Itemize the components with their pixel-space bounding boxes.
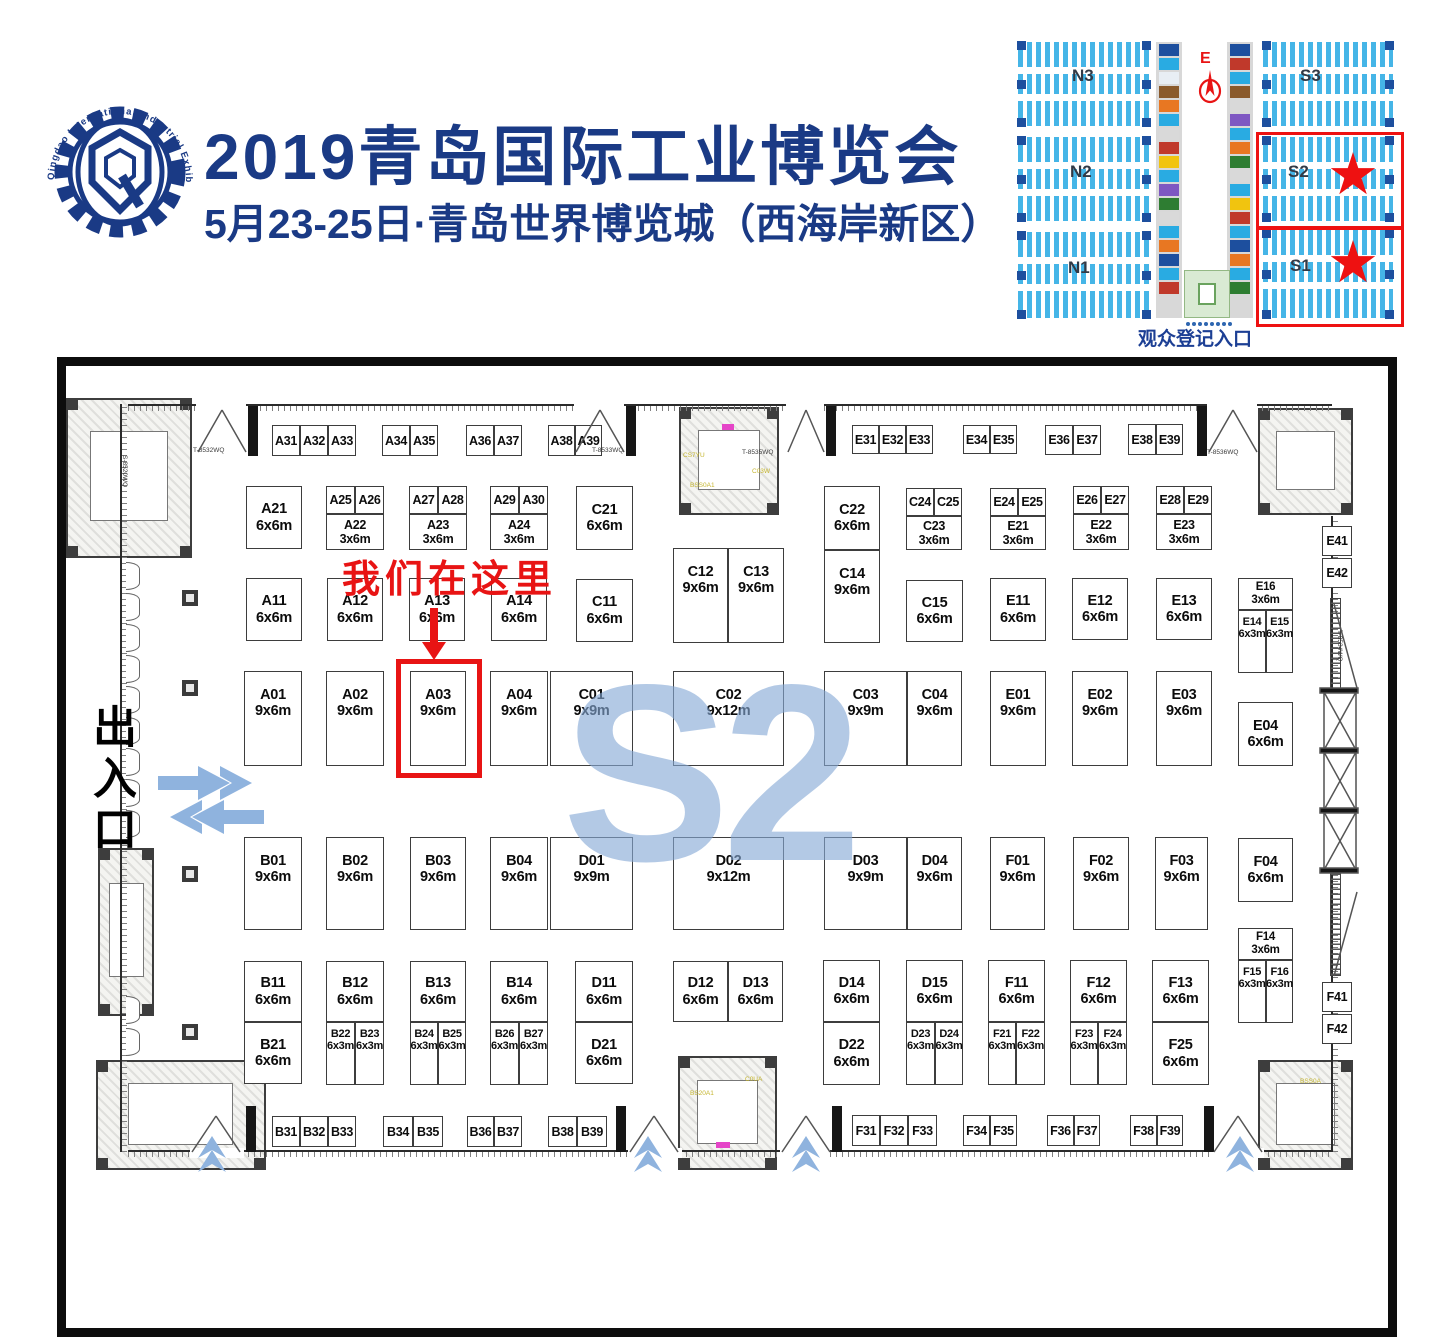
pillar <box>182 866 198 882</box>
wall-opening <box>196 404 246 414</box>
booth-A04: A049x6m <box>490 671 548 766</box>
booth-B33: B33 <box>328 1116 356 1147</box>
booth-A24: A243x6m <box>490 514 548 550</box>
booth-B27: B276x3m <box>519 1022 548 1085</box>
door-arc <box>126 624 140 652</box>
facility-code: C03W <box>752 468 770 475</box>
booth-B21: B216x6m <box>244 1022 302 1084</box>
booth-C15: C156x6m <box>906 580 963 642</box>
booth-F15: F156x3m <box>1238 960 1266 1023</box>
minimap-hall-S3 <box>1263 42 1393 126</box>
booth-E34: E34 <box>963 425 990 454</box>
booth-F34: F34 <box>963 1115 990 1146</box>
booth-B01: B019x6m <box>244 837 302 930</box>
booth-F39: F39 <box>1157 1115 1183 1146</box>
magenta-mark <box>716 1142 730 1148</box>
booth-C25: C25 <box>934 488 962 516</box>
wall-code: T-8535WQ <box>742 449 773 456</box>
booth-F16: F166x3m <box>1266 960 1293 1023</box>
door-arc <box>126 1028 140 1056</box>
minimap-corridor-strip <box>1156 42 1182 318</box>
page-subtitle: 5月23-25日·青岛世界博览城（西海岸新区） <box>204 190 1001 250</box>
booth-A38: A38 <box>548 425 575 456</box>
booth-A02: A029x6m <box>326 671 384 766</box>
booth-B03: B039x6m <box>410 837 466 930</box>
booth-F42: F42 <box>1322 1014 1352 1044</box>
magenta-mark <box>722 424 734 430</box>
wall-code: T-8533WQ <box>592 447 623 454</box>
booth-C14: C149x6m <box>824 550 880 643</box>
booth-F04: F046x6m <box>1238 838 1293 902</box>
booth-E31: E31 <box>852 425 879 454</box>
booth-C22: C226x6m <box>824 486 880 550</box>
booth-E41: E41 <box>1322 526 1352 556</box>
exit-entrance-label: 出入口 <box>78 704 142 857</box>
booth-C03: C039x9m <box>824 671 907 766</box>
door-arc <box>126 562 140 590</box>
wall-opening <box>780 1148 830 1158</box>
booth-A21: A216x6m <box>246 486 302 549</box>
booth-F03: F039x6m <box>1155 837 1208 930</box>
booth-D04: D049x6m <box>907 837 962 930</box>
booth-E33: E33 <box>906 425 933 454</box>
expo-logo-icon: Qingdao International Industrial Exhibit… <box>38 80 202 258</box>
wall-code: T-8536WQ <box>1207 449 1238 456</box>
we-are-here-annotation: 我们在这里 <box>342 548 557 603</box>
booth-A28: A28 <box>438 486 467 514</box>
minimap-dot <box>1222 322 1226 326</box>
facility-block <box>66 398 192 558</box>
facility-code: CS7YU <box>683 452 705 459</box>
booth-C21: C216x6m <box>576 486 633 550</box>
wall-post <box>1204 1106 1214 1152</box>
booth-a03-highlight-box <box>396 659 482 778</box>
booth-A23: A233x6m <box>409 514 467 550</box>
booth-E38: E38 <box>1128 424 1156 455</box>
booth-A30: A30 <box>519 486 548 514</box>
booth-A37: A37 <box>494 425 522 456</box>
booth-A22: A223x6m <box>326 514 384 550</box>
booth-E12: E126x6m <box>1072 578 1128 640</box>
booth-E36: E36 <box>1045 425 1073 455</box>
booth-C02: C029x12m <box>673 671 784 766</box>
minimap-dot <box>1228 322 1232 326</box>
booth-F11: F116x6m <box>988 960 1045 1022</box>
wall-code: T-8534WQ <box>1336 828 1343 859</box>
wall-code: T-8532WQ <box>193 447 224 454</box>
minimap-hall-label-S3: S3 <box>1300 66 1321 86</box>
facility-code: BSS0A <box>1300 1078 1321 1085</box>
booth-F31: F31 <box>852 1115 880 1146</box>
booth-B12: B126x6m <box>326 961 384 1022</box>
booth-A34: A34 <box>382 425 410 456</box>
booth-E27: E27 <box>1101 486 1129 514</box>
booth-E22: E223x6m <box>1073 514 1129 550</box>
wall-post <box>826 406 836 456</box>
wall-post <box>832 1106 842 1152</box>
wall-opening <box>1212 1148 1264 1158</box>
booth-F12: F126x6m <box>1070 960 1127 1022</box>
wall-post <box>626 406 636 456</box>
booth-D03: D039x9m <box>824 837 907 930</box>
booth-F41: F41 <box>1322 982 1352 1012</box>
booth-D01: D019x9m <box>550 837 633 930</box>
booth-A26: A26 <box>355 486 384 514</box>
wall-post <box>616 1106 626 1152</box>
wall-post <box>1197 406 1207 456</box>
booth-B22: B226x3m <box>326 1022 355 1085</box>
booth-F22: F226x3m <box>1016 1022 1045 1085</box>
booth-E39: E39 <box>1156 424 1183 455</box>
booth-A27: A27 <box>409 486 438 514</box>
booth-D13: D136x6m <box>728 961 783 1022</box>
booth-A11: A116x6m <box>246 578 302 641</box>
booth-A01: A019x6m <box>244 671 302 766</box>
booth-B38: B38 <box>548 1116 577 1147</box>
booth-E26: E26 <box>1073 486 1101 514</box>
booth-B13: B136x6m <box>410 961 466 1022</box>
booth-D11: D116x6m <box>575 961 633 1022</box>
booth-F38: F38 <box>1130 1115 1157 1146</box>
booth-C23: C233x6m <box>906 516 962 550</box>
booth-F24: F246x3m <box>1098 1022 1127 1085</box>
booth-B24: B246x3m <box>410 1022 438 1085</box>
booth-E28: E28 <box>1156 486 1184 514</box>
booth-E35: E35 <box>990 425 1017 454</box>
booth-F13: F136x6m <box>1152 960 1209 1022</box>
booth-E37: E37 <box>1073 425 1101 455</box>
booth-E24: E24 <box>990 488 1018 516</box>
booth-D12: D126x6m <box>673 961 728 1022</box>
booth-B25: B256x3m <box>438 1022 466 1085</box>
booth-B02: B029x6m <box>326 837 384 930</box>
booth-F37: F37 <box>1074 1115 1100 1146</box>
booth-D02: D029x12m <box>673 837 784 930</box>
booth-D15: D156x6m <box>906 960 963 1022</box>
booth-A25: A25 <box>326 486 355 514</box>
booth-C11: C116x6m <box>576 579 633 642</box>
booth-A36: A36 <box>466 425 494 456</box>
booth-C13: C139x6m <box>728 548 784 643</box>
booth-E25: E25 <box>1018 488 1046 516</box>
booth-E13: E136x6m <box>1156 578 1212 640</box>
compass-east-label: E <box>1200 50 1211 68</box>
booth-E21: E213x6m <box>990 516 1046 550</box>
wall-post <box>248 406 258 456</box>
booth-A29: A29 <box>490 486 519 514</box>
minimap-dot <box>1198 322 1202 326</box>
door-arc <box>126 996 140 1024</box>
booth-C04: C049x6m <box>907 671 962 766</box>
wall-code: T-120#WQ <box>1336 700 1343 731</box>
booth-E32: E32 <box>879 425 906 454</box>
booth-D24: D246x3m <box>935 1022 963 1085</box>
facility-code: BSS0A1 <box>690 482 715 489</box>
booth-B36: B36 <box>467 1116 494 1147</box>
minimap-dot <box>1204 322 1208 326</box>
booth-B14: B146x6m <box>490 961 548 1022</box>
booth-E42: E42 <box>1322 558 1352 588</box>
booth-C01: C019x9m <box>550 671 633 766</box>
facility-code: C0UA <box>745 1076 762 1083</box>
bottom-wall <box>128 1150 1332 1157</box>
booth-B26: B266x3m <box>490 1022 519 1085</box>
minimap-corridor-strip <box>1227 42 1253 318</box>
door-arc <box>126 655 140 683</box>
booth-F01: F019x6m <box>990 837 1045 930</box>
minimap-entrance-block <box>1184 270 1230 318</box>
wall-opening <box>190 1148 244 1158</box>
right-wall-hatch <box>1330 872 1341 976</box>
wall-opening <box>574 404 624 414</box>
booth-F32: F32 <box>880 1115 908 1146</box>
minimap-star-icon: ★ <box>1327 234 1379 292</box>
booth-B34: B34 <box>383 1116 413 1147</box>
booth-B39: B39 <box>577 1116 607 1147</box>
booth-E02: E029x6m <box>1072 671 1128 766</box>
booth-F23: F236x3m <box>1070 1022 1098 1085</box>
wall-opening <box>1207 404 1257 414</box>
booth-E16: E163x6m <box>1238 578 1293 610</box>
booth-E29: E29 <box>1184 486 1212 514</box>
page-title: 2019青岛国际工业博览会 <box>204 106 961 198</box>
booth-D21: D216x6m <box>575 1022 633 1084</box>
booth-E14: E146x3m <box>1238 610 1266 673</box>
booth-E03: E039x6m <box>1156 671 1212 766</box>
pillar <box>182 680 198 696</box>
booth-D23: D236x3m <box>906 1022 935 1085</box>
booth-E04: E046x6m <box>1238 702 1293 766</box>
booth-B32: B32 <box>300 1116 328 1147</box>
booth-F21: F216x3m <box>988 1022 1016 1085</box>
booth-F02: F029x6m <box>1073 837 1129 930</box>
booth-E15: E156x3m <box>1266 610 1293 673</box>
facility-code: BS20A1 <box>690 1090 714 1097</box>
wall-code: S-8520WQ <box>121 455 128 487</box>
booth-F35: F35 <box>990 1115 1017 1146</box>
booth-D22: D226x6m <box>823 1022 880 1085</box>
pillar <box>182 1024 198 1040</box>
poster: Qingdao International Industrial Exhibit… <box>0 0 1440 1172</box>
booth-C24: C24 <box>906 488 934 516</box>
booth-A35: A35 <box>410 425 438 456</box>
wall-post <box>246 1106 256 1152</box>
booth-B31: B31 <box>272 1116 300 1147</box>
minimap-hall-label-N2: N2 <box>1070 162 1092 182</box>
minimap-hall-label-N3: N3 <box>1072 66 1094 86</box>
booth-A33: A33 <box>328 425 356 456</box>
booth-E01: E019x6m <box>990 671 1046 766</box>
wall-code: T-8534WQ <box>1336 630 1343 661</box>
facility-block <box>1258 408 1353 515</box>
minimap-star-icon: ★ <box>1327 146 1379 204</box>
wall-opening <box>786 404 824 414</box>
door-arc <box>126 593 140 621</box>
booth-B35: B35 <box>413 1116 443 1147</box>
booth-E23: E233x6m <box>1156 514 1212 550</box>
booth-F25: F256x6m <box>1152 1022 1209 1085</box>
booth-F14: F143x6m <box>1238 928 1293 960</box>
booth-E11: E116x6m <box>990 578 1046 641</box>
booth-A31: A31 <box>272 425 300 456</box>
booth-A32: A32 <box>300 425 328 456</box>
visitor-entrance-label: 观众登记入口 <box>1138 324 1252 351</box>
minimap-dot <box>1216 322 1220 326</box>
booth-B23: B236x3m <box>355 1022 384 1085</box>
booth-B11: B116x6m <box>244 961 302 1022</box>
minimap-dot <box>1192 322 1196 326</box>
compass-icon <box>1197 70 1223 104</box>
booth-B37: B37 <box>494 1116 522 1147</box>
booth-D14: D146x6m <box>823 960 880 1022</box>
top-wall <box>128 404 1332 411</box>
minimap-dot <box>1186 322 1190 326</box>
minimap-dot <box>1210 322 1214 326</box>
minimap-hall-label-N1: N1 <box>1068 258 1090 278</box>
wall-opening <box>628 1148 682 1158</box>
wall-code: T-120#WQ <box>1336 764 1343 795</box>
booth-B04: B049x6m <box>490 837 548 930</box>
booth-F36: F36 <box>1047 1115 1074 1146</box>
booth-C12: C129x6m <box>673 548 728 643</box>
pillar <box>182 590 198 606</box>
booth-F33: F33 <box>908 1115 937 1146</box>
